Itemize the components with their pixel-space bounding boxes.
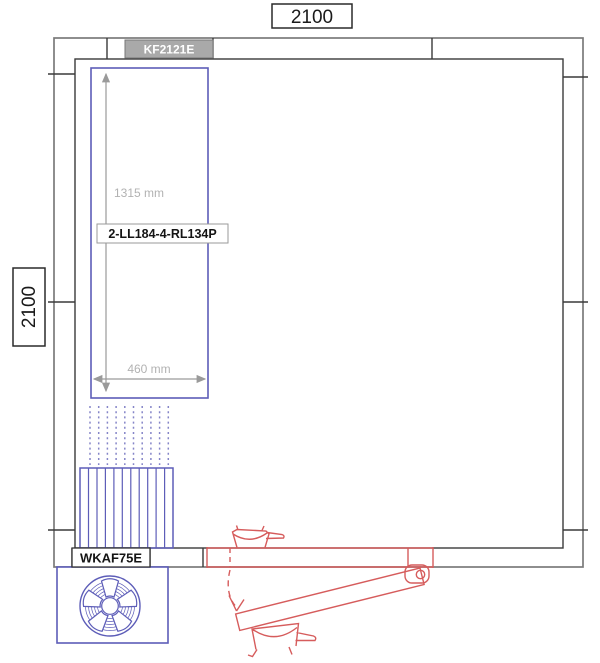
left-dimension-label: 2100	[19, 286, 40, 328]
top-panel-code: KF2121E	[125, 40, 213, 58]
unit-code: 2-LL184-4-RL134P	[97, 224, 228, 243]
width-dimension-label: 460 mm	[127, 362, 170, 376]
door	[207, 526, 433, 657]
floor-plan-page: 2100 2100 KF2121E	[0, 0, 600, 658]
evaporator-hatch	[80, 468, 173, 548]
floor-plan-drawing: 2100 2100 KF2121E	[0, 0, 600, 658]
door-swing-arrow-icon	[228, 570, 244, 611]
top-dimension-label: 2100	[291, 7, 333, 28]
airflow-dotted-lines	[90, 406, 168, 465]
fan-hub	[102, 598, 119, 615]
evaporator-code: WKAF75E	[72, 548, 150, 567]
door-frame	[207, 547, 433, 568]
height-dimension-label: 1315 mm	[114, 186, 164, 200]
unit-code-label: 2-LL184-4-RL134P	[108, 227, 216, 241]
wall-outer	[54, 38, 583, 567]
panel-code-label: KF2121E	[144, 43, 195, 57]
door-handle-inner	[233, 526, 285, 548]
door-leaf-open	[236, 565, 429, 657]
panel-joints	[48, 38, 588, 567]
fan-icon	[80, 576, 140, 636]
walls	[48, 38, 588, 567]
door-handle-outer	[248, 624, 316, 657]
evaporator-code-label: WKAF75E	[80, 551, 142, 566]
